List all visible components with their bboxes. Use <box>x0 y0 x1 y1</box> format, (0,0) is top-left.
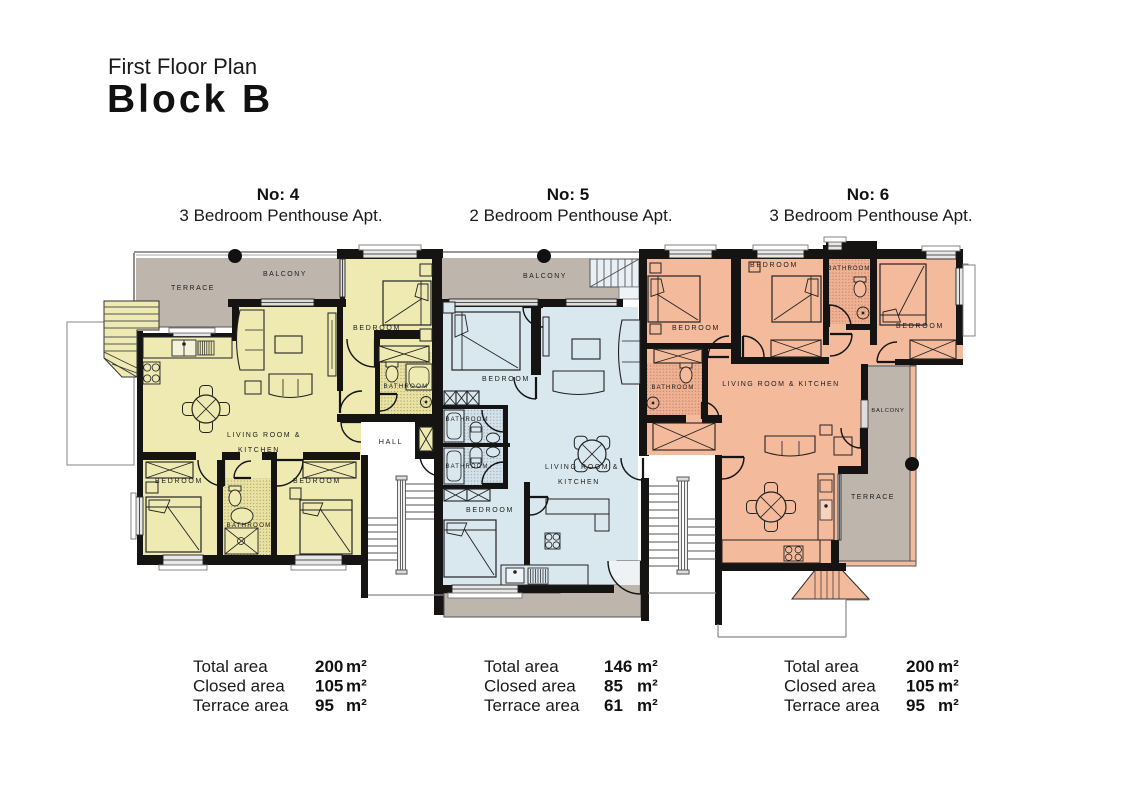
svg-text:m²: m² <box>346 696 367 715</box>
svg-text:m²: m² <box>346 657 367 676</box>
svg-text:First Floor Plan: First Floor Plan <box>108 54 257 79</box>
svg-text:BATHROOM: BATHROOM <box>445 417 488 423</box>
svg-text:146: 146 <box>604 657 632 676</box>
svg-text:2 Bedroom Penthouse Apt.: 2 Bedroom Penthouse Apt. <box>469 206 672 225</box>
svg-text:BEDROOM: BEDROOM <box>155 478 203 485</box>
svg-text:Closed area: Closed area <box>784 677 876 696</box>
svg-text:BEDROOM: BEDROOM <box>293 478 341 485</box>
svg-text:LIVING ROOM & KITCHEN: LIVING ROOM & KITCHEN <box>722 381 839 388</box>
svg-text:KITCHEN: KITCHEN <box>238 447 280 454</box>
svg-text:85: 85 <box>604 677 623 696</box>
svg-text:No: 4: No: 4 <box>257 185 300 204</box>
svg-text:HALL: HALL <box>379 437 403 446</box>
svg-text:105: 105 <box>315 677 343 696</box>
svg-text:BATHROOM: BATHROOM <box>651 385 694 391</box>
svg-text:3 Bedroom Penthouse Apt.: 3 Bedroom Penthouse Apt. <box>769 206 972 225</box>
svg-text:BALCONY: BALCONY <box>523 273 567 280</box>
svg-text:TERRACE: TERRACE <box>171 285 215 292</box>
svg-text:Total area: Total area <box>193 657 268 676</box>
svg-text:3 Bedroom Penthouse Apt.: 3 Bedroom Penthouse Apt. <box>179 206 382 225</box>
svg-text:m²: m² <box>938 677 959 696</box>
svg-text:Closed area: Closed area <box>193 677 285 696</box>
svg-text:KITCHEN: KITCHEN <box>558 479 600 486</box>
svg-text:BEDROOM: BEDROOM <box>353 325 401 332</box>
svg-text:m²: m² <box>938 696 959 715</box>
svg-text:LIVING ROOM &: LIVING ROOM & <box>545 464 619 471</box>
svg-text:BEDROOM: BEDROOM <box>466 507 514 514</box>
svg-text:95: 95 <box>315 696 334 715</box>
svg-text:BALCONY: BALCONY <box>871 408 904 414</box>
svg-text:Terrace area: Terrace area <box>784 696 880 715</box>
svg-text:200: 200 <box>315 657 343 676</box>
svg-text:No: 6: No: 6 <box>847 185 890 204</box>
svg-text:LIVING ROOM &: LIVING ROOM & <box>227 432 301 439</box>
svg-text:200: 200 <box>906 657 934 676</box>
svg-text:Closed area: Closed area <box>484 677 576 696</box>
svg-text:105: 105 <box>906 677 934 696</box>
svg-text:Terrace area: Terrace area <box>193 696 289 715</box>
svg-text:BEDROOM: BEDROOM <box>482 376 530 383</box>
svg-text:BALCONY: BALCONY <box>263 271 307 278</box>
svg-text:Total area: Total area <box>784 657 859 676</box>
svg-text:BATHROOM: BATHROOM <box>445 464 488 470</box>
svg-text:61: 61 <box>604 696 623 715</box>
svg-text:95: 95 <box>906 696 925 715</box>
svg-text:m²: m² <box>637 696 658 715</box>
svg-text:BATHROOM: BATHROOM <box>384 383 429 390</box>
svg-text:TERRACE: TERRACE <box>851 494 895 501</box>
svg-text:Total area: Total area <box>484 657 559 676</box>
svg-text:Terrace area: Terrace area <box>484 696 580 715</box>
svg-text:m²: m² <box>637 657 658 676</box>
svg-text:No: 5: No: 5 <box>547 185 590 204</box>
svg-text:m²: m² <box>346 677 367 696</box>
svg-text:BEDROOM: BEDROOM <box>750 262 798 269</box>
svg-text:m²: m² <box>938 657 959 676</box>
svg-text:BEDROOM: BEDROOM <box>672 325 720 332</box>
svg-text:BEDROOM: BEDROOM <box>896 323 944 330</box>
svg-text:BATHROOM: BATHROOM <box>227 522 272 529</box>
svg-text:m²: m² <box>637 677 658 696</box>
svg-text:BATHROOM: BATHROOM <box>827 266 870 272</box>
svg-text:Block B: Block B <box>107 78 273 121</box>
